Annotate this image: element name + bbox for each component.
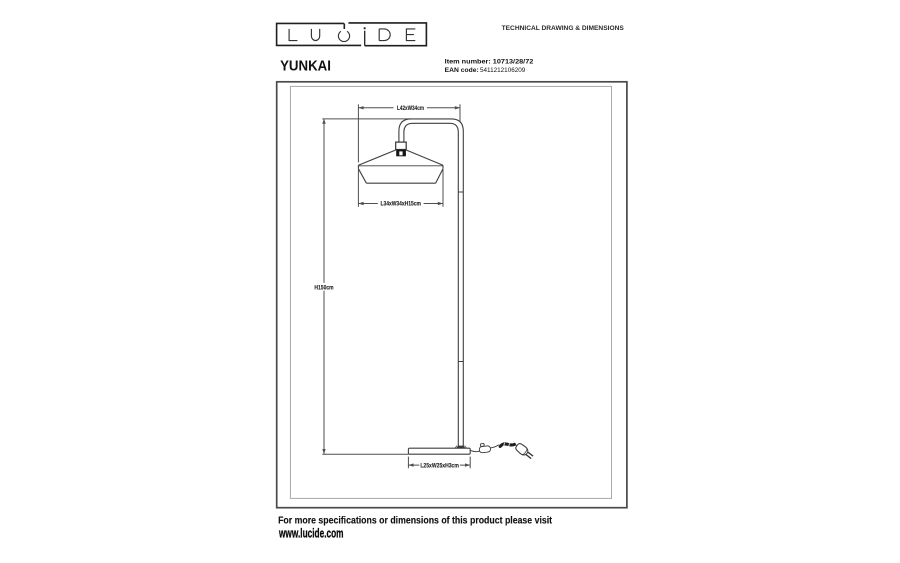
svg-text:www.lucide.com: www.lucide.com (278, 525, 343, 540)
svg-text:L25xW25xH3cm: L25xW25xH3cm (420, 463, 459, 469)
svg-text:Item number: 10713/28/72: Item number: 10713/28/72 (445, 59, 534, 66)
svg-text:YUNKAI: YUNKAI (280, 58, 331, 74)
svg-text:5411212106209: 5411212106209 (480, 67, 526, 74)
svg-text:EAN code:: EAN code: (445, 67, 479, 74)
svg-text:H150cm: H150cm (314, 286, 333, 292)
svg-text:TECHNICAL DRAWING & DIMENSIONS: TECHNICAL DRAWING & DIMENSIONS (502, 25, 625, 32)
svg-text:L34xW34xH15cm: L34xW34xH15cm (380, 202, 421, 208)
svg-text:L42xW34cm: L42xW34cm (397, 106, 424, 112)
